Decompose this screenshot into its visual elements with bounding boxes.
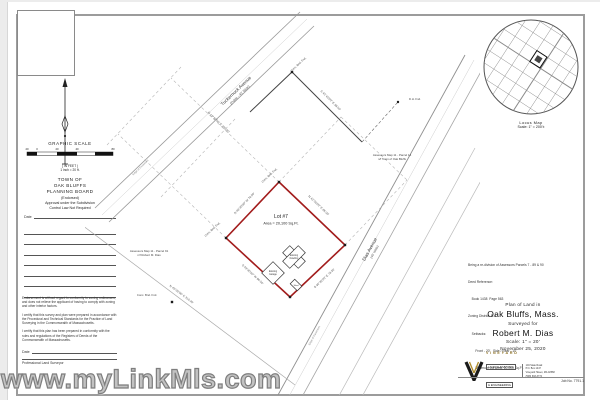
locus-map [480, 16, 582, 118]
edge-of-pavement-label: Edge of Pavement [131, 158, 149, 176]
firm-logo-block: VINEYARD LAND SURVEYING & ENGINEERING 10… [464, 351, 586, 391]
svg-text:Conc. Bnd. Fnd.: Conc. Bnd. Fnd. [137, 293, 157, 297]
plan-place: Oak Bluffs, Mass. [460, 310, 586, 320]
svg-text:S 43°30'00" W 86.00': S 43°30'00" W 86.00' [241, 263, 265, 285]
svg-text:N 43°30'00" E 200.00': N 43°30'00" E 200.00' [207, 111, 231, 134]
title-line: Plan of Land in [460, 302, 586, 309]
svg-text:S 45°45'00" E 99.00': S 45°45'00" E 99.00' [320, 89, 343, 112]
locus-caption: Locus Map Scale: 1" = 200'± [480, 120, 582, 129]
svg-text:Edge of Pavement: Edge of Pavement [131, 158, 149, 176]
firm-line: LAND SURVEYING [486, 364, 516, 370]
plan-scale: Scale: 1" = 20' [460, 339, 586, 346]
svg-text:Shed: Shed [294, 285, 300, 287]
note-line: Deed Reference: [468, 280, 586, 286]
svg-text:n/f Robert M. Dias: n/f Robert M. Dias [137, 253, 161, 257]
svg-text:Edge of Pavement: Edge of Pavement [307, 325, 321, 346]
date-label: Date [22, 350, 30, 354]
svg-text:40: 40 [75, 147, 79, 151]
date-label: Date [24, 215, 32, 219]
survey-plot: Existing Dwelling Existing Garage Shed L… [85, 8, 480, 395]
street-tuckernuck-lines [95, 12, 314, 222]
way-sideline [85, 222, 295, 385]
monument-labels: Conc. Bnd. Fnd. Conc. Bnd. Fnd. Conc. Bn… [137, 56, 421, 297]
lot-number-label: Lot #7 [274, 214, 288, 220]
building-dwelling: Existing Dwelling [278, 241, 309, 272]
lot-boundary-red [226, 182, 345, 297]
street-label-dias: Dias Avenue (40' Wide) [361, 236, 382, 264]
adjacent-tract-boundary [250, 72, 362, 142]
svg-text:Conc. Bnd. Fnd.: Conc. Bnd. Fnd. [290, 56, 308, 73]
abutter-note: Assessors Map 11 - Parcel 91 n/f Robert … [130, 249, 169, 257]
locus-scale: Scale: 1" = 200'± [480, 125, 582, 129]
svg-text:Garage: Garage [269, 273, 277, 276]
svg-text:Existing: Existing [269, 270, 278, 273]
plan-client: Robert M. Dias [460, 329, 586, 339]
svg-text:Dwelling: Dwelling [290, 258, 299, 260]
abutter-note: Assessors Map 11 - Parcel 14 n/f Town of… [373, 153, 412, 161]
title-block-rule [458, 377, 584, 378]
svg-text:20: 20 [25, 147, 29, 151]
vineyard-v-logo-icon [464, 361, 484, 381]
road-lines-lower-right [335, 148, 480, 395]
neighbor-lot-dashed-lines [107, 67, 407, 245]
svg-text:Conc. Bnd. Fnd.: Conc. Bnd. Fnd. [261, 167, 279, 184]
svg-text:Existing: Existing [290, 254, 299, 257]
registry-stamp-box [17, 10, 75, 76]
job-number: Job No. 7791.1 [458, 379, 586, 383]
watermark: www.myLinkMls.com [1, 364, 282, 395]
building-garage: Existing Garage [262, 262, 285, 285]
svg-text:n/f Town of Oak Bluffs: n/f Town of Oak Bluffs [378, 157, 407, 161]
building-shed: Shed [290, 279, 302, 291]
svg-text:0: 0 [36, 147, 38, 151]
svg-text:D.H. Fnd.: D.H. Fnd. [409, 97, 421, 101]
title-line: Surveyed for [460, 321, 586, 328]
svg-text:S 46°30'00" E 78.50': S 46°30'00" E 78.50' [313, 267, 336, 289]
svg-text:Tuckernuck Avenue: Tuckernuck Avenue [220, 75, 253, 107]
edge-of-pavement-label: Edge of Pavement [307, 325, 321, 346]
svg-text:N 46°30'00" W 78.50': N 46°30'00" W 78.50' [233, 191, 256, 215]
svg-text:20: 20 [55, 147, 59, 151]
note-line: Being a re-division of Assessors Parcels… [468, 263, 586, 269]
scan-edge-shadow [7, 2, 8, 400]
tie-line [362, 102, 398, 142]
lot-area-label: Area = 20,100 Sq.Ft. [263, 222, 298, 226]
title-block: Plan of Land in Oak Bluffs, Mass. Survey… [460, 302, 586, 353]
street-label-tuckernuck: Tuckernuck Avenue (Public - 40' Wide) [220, 75, 256, 110]
svg-text:Conc. Bnd. Fnd.: Conc. Bnd. Fnd. [204, 221, 222, 238]
